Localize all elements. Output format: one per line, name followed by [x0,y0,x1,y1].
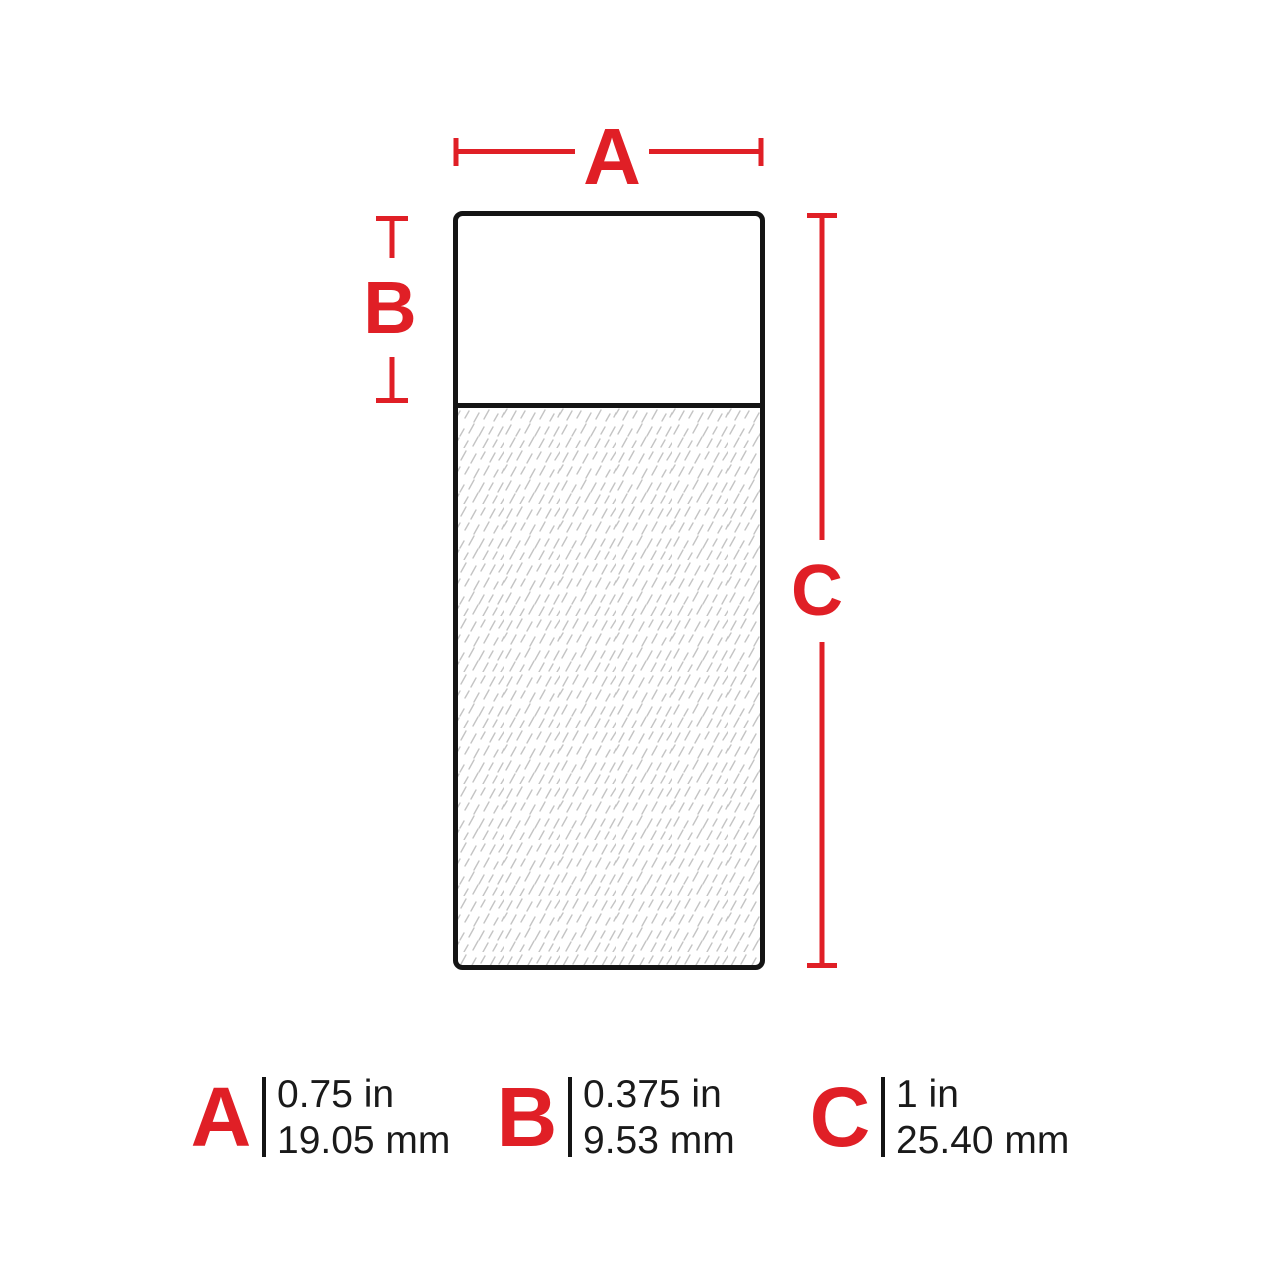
legend-values-a: 0.75 in 19.05 mm [277,1072,450,1157]
legend-c-inches: 1 in [896,1072,1069,1118]
label-adhesive-hatch-area [455,408,763,968]
legend-divider [568,1077,572,1157]
legend-letter-a: A [188,1075,254,1157]
legend-letter-c: C [807,1075,873,1157]
legend-entry-c: C 1 in 25.40 mm [807,1077,1069,1157]
legend-c-millimeters: 25.40 mm [896,1118,1069,1164]
legend-divider [262,1077,266,1157]
legend-b-millimeters: 9.53 mm [583,1118,735,1164]
legend-a-inches: 0.75 in [277,1072,450,1118]
dim-a-label: A [583,112,641,201]
legend-letter-b: B [494,1075,560,1157]
legend-b-inches: 0.375 in [583,1072,735,1118]
legend-values-b: 0.375 in 9.53 mm [583,1072,735,1157]
legend-divider [881,1077,885,1157]
diagram-canvas: A B C A 0.75 in 19.05 mm B [0,0,1280,1280]
dim-b-label: B [363,266,416,349]
legend-a-millimeters: 19.05 mm [277,1118,450,1164]
label-dimension-diagram: A B C [0,0,1280,1010]
legend-values-c: 1 in 25.40 mm [896,1072,1069,1157]
dim-c-label: C [791,551,843,631]
legend-entry-a: A 0.75 in 19.05 mm [188,1077,450,1157]
legend-entry-b: B 0.375 in 9.53 mm [494,1077,735,1157]
